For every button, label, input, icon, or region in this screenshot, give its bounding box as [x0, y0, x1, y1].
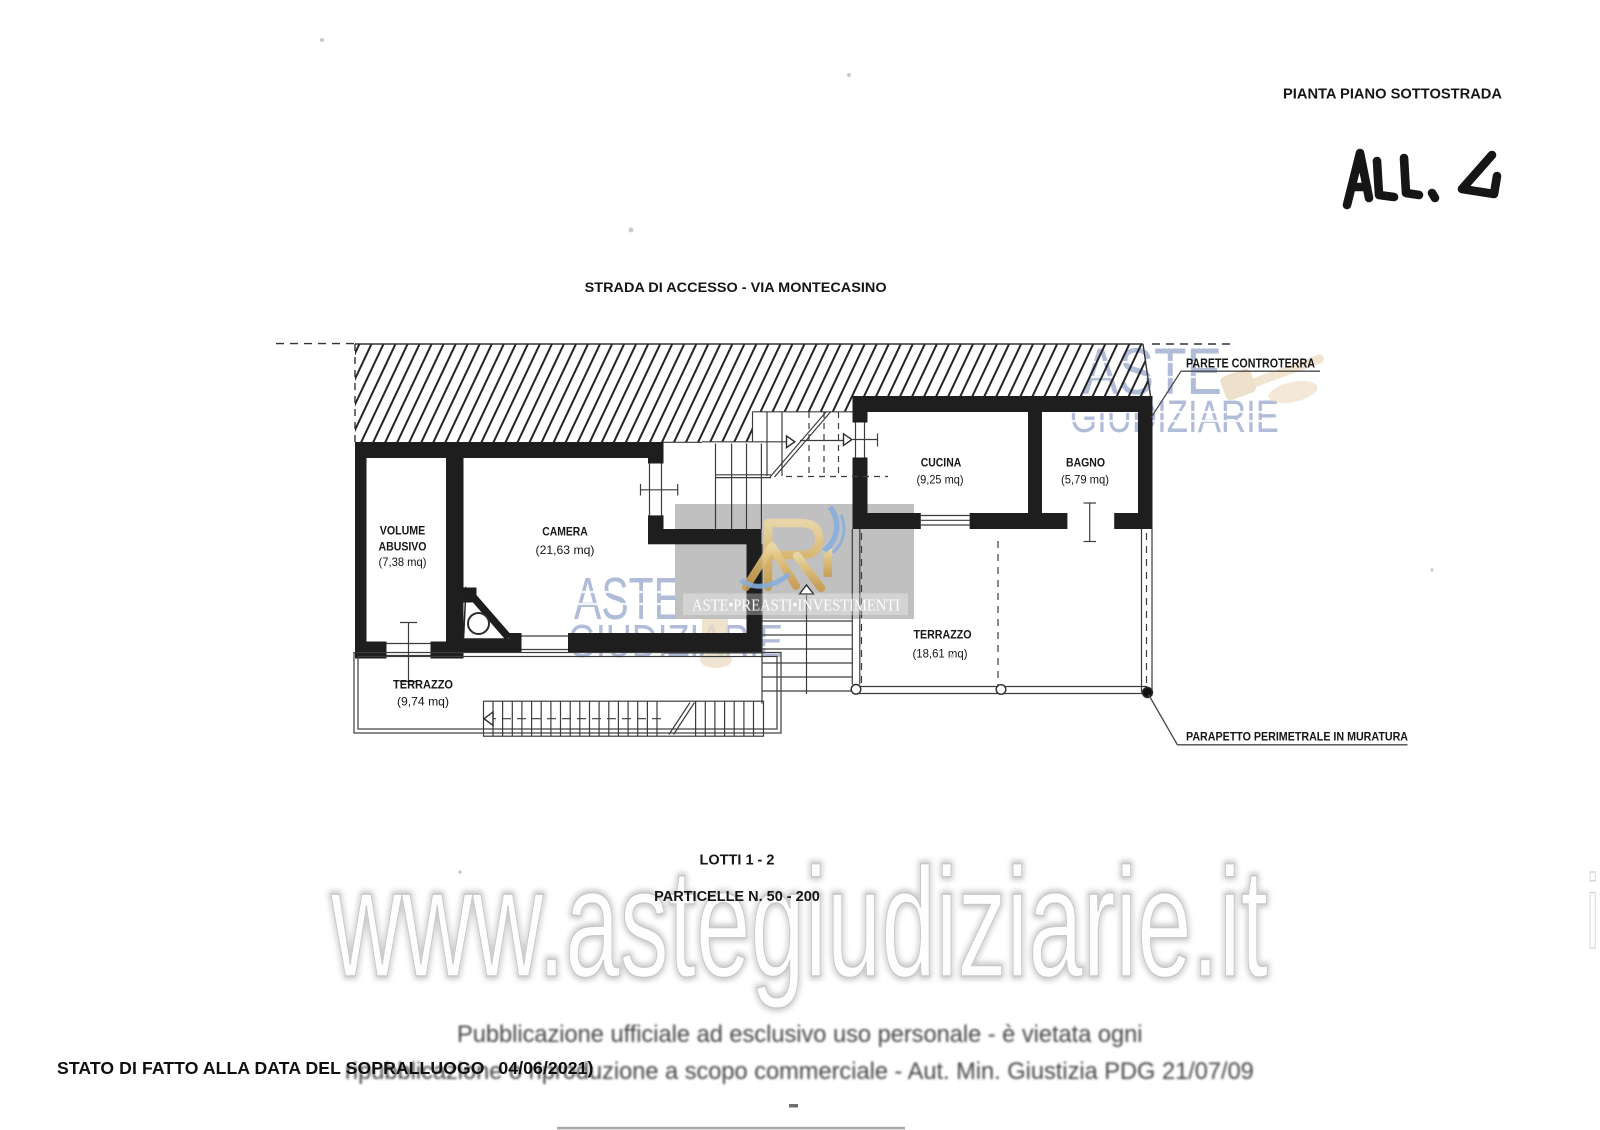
svg-text:PIANTA PIANO SOTTOSTRADA: PIANTA PIANO SOTTOSTRADA	[1283, 86, 1502, 103]
svg-text:TERRAZZO: TERRAZZO	[914, 628, 972, 642]
svg-text:CAMERA: CAMERA	[542, 525, 588, 539]
svg-text:ABUSIVO: ABUSIVO	[379, 540, 427, 554]
svg-text:PARETE CONTROTERRA: PARETE CONTROTERRA	[1186, 357, 1315, 371]
svg-text:STRADA DI ACCESSO - VIA MONTEC: STRADA DI ACCESSO - VIA MONTECASINO	[585, 280, 887, 296]
svg-text:www.astegiudiziarie.it: www.astegiudiziarie.it	[330, 836, 1268, 1009]
svg-text:PARTICELLE N. 50 - 200: PARTICELLE N. 50 - 200	[654, 889, 820, 905]
svg-text:(21,63 mq): (21,63 mq)	[536, 544, 595, 557]
svg-text:(5,79 mq): (5,79 mq)	[1061, 474, 1109, 487]
svg-text:TERRAZZO: TERRAZZO	[393, 678, 453, 692]
svg-text:(9,74 mq): (9,74 mq)	[397, 696, 449, 709]
svg-text:ASTE•PREASTI•INVESTIMENTI: ASTE•PREASTI•INVESTIMENTI	[692, 596, 900, 615]
svg-text:LOTTI 1 - 2: LOTTI 1 - 2	[700, 853, 775, 869]
svg-text:(9,25 mq): (9,25 mq)	[917, 474, 964, 487]
svg-text:Pubblicazione ufficiale ad esc: Pubblicazione ufficiale ad esclusivo uso…	[457, 1022, 1143, 1048]
svg-text:(7,38 mq): (7,38 mq)	[379, 556, 427, 569]
svg-text:it: it	[1586, 854, 1600, 971]
svg-text:BAGNO: BAGNO	[1066, 456, 1105, 470]
svg-text:CUCINA: CUCINA	[921, 456, 962, 470]
svg-text:VOLUME: VOLUME	[380, 524, 426, 538]
svg-text:STATO DI FATTO ALLA DATA DEL S: STATO DI FATTO ALLA DATA DEL SOPRALLUOGO…	[57, 1058, 593, 1078]
svg-text:(18,61 mq): (18,61 mq)	[913, 648, 968, 661]
svg-text:PARAPETTO PERIMETRALE IN MURAT: PARAPETTO PERIMETRALE IN MURATURA	[1186, 730, 1408, 744]
